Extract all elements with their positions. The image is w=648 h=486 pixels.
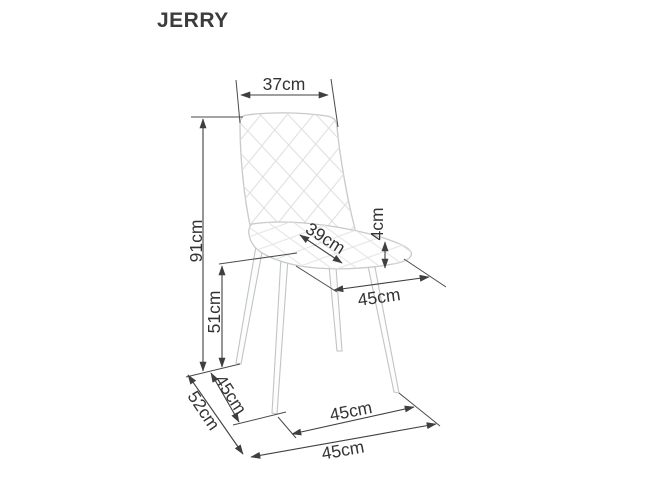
chair-leg-back-right xyxy=(329,266,342,351)
dim-backrest-width-label: 37cm xyxy=(263,74,306,94)
extension-line xyxy=(186,364,240,377)
extension-line xyxy=(278,417,296,438)
dim-total-height: 91cm xyxy=(186,117,243,377)
chair-leg-front-right xyxy=(367,261,399,393)
chair-dimension-diagram: JERRY 37cm 91cm xyxy=(0,0,648,486)
dim-front-leg-span-label: 45cm xyxy=(328,397,374,425)
dim-seat-thickness-label: 4cm xyxy=(367,207,387,240)
dim-total-width: 45cm xyxy=(251,424,436,464)
dim-total-depth-label: 52cm xyxy=(184,387,225,434)
dim-total-width-label: 45cm xyxy=(320,436,366,463)
diagram-page: JERRY 37cm 91cm xyxy=(0,0,648,486)
chair-leg-front-left xyxy=(272,257,288,414)
dim-total-height-label: 91cm xyxy=(186,220,206,263)
chair-leg-back-left xyxy=(236,246,263,364)
dim-seat-width-label: 45cm xyxy=(356,284,401,310)
dim-front-leg-span: 45cm xyxy=(278,393,440,438)
extension-line xyxy=(233,412,286,425)
dim-seat-height-label: 51cm xyxy=(204,291,224,334)
product-title: JERRY xyxy=(157,9,229,32)
extension-line xyxy=(404,259,446,287)
